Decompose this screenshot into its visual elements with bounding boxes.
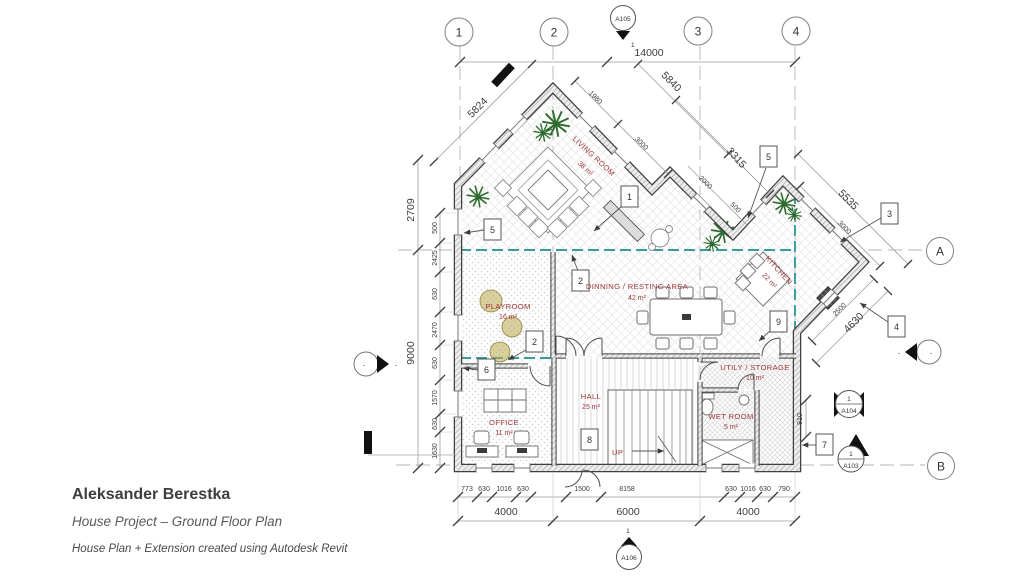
svg-text:-: - bbox=[395, 362, 397, 369]
sheet-author: Aleksander Berestka bbox=[72, 486, 230, 503]
svg-text:A103: A103 bbox=[843, 463, 859, 470]
svg-text:500: 500 bbox=[432, 222, 439, 234]
svg-text:1630: 1630 bbox=[432, 443, 439, 459]
svg-text:6000: 6000 bbox=[616, 506, 640, 518]
tag-6: 6 bbox=[478, 359, 495, 380]
svg-text:1: 1 bbox=[456, 26, 463, 40]
callout-marker-a106: 1 A106 bbox=[617, 528, 642, 570]
svg-text:3: 3 bbox=[695, 25, 702, 39]
office-cabinet bbox=[484, 389, 526, 412]
tag-3: 3 bbox=[881, 203, 898, 224]
dim-diag-left: 5824 bbox=[465, 95, 490, 120]
svg-text:42 m²: 42 m² bbox=[628, 295, 647, 302]
floor-plan-sheet: 14000 5824 5840 1980 3000 3315 2000 500 … bbox=[0, 0, 1024, 576]
section-marker-a104: 1 A104 bbox=[834, 391, 864, 418]
grid-bubble-1: 1 bbox=[445, 18, 473, 46]
svg-text:1980: 1980 bbox=[587, 90, 603, 106]
title-block: Aleksander Berestka House Project – Grou… bbox=[72, 486, 348, 555]
svg-text:630: 630 bbox=[432, 418, 439, 430]
floor-plan-canvas: 14000 5824 5840 1980 3000 3315 2000 500 … bbox=[0, 0, 1024, 576]
grid-bubble-A: A bbox=[927, 238, 954, 265]
svg-text:1016: 1016 bbox=[740, 486, 756, 493]
tag-8: 8 bbox=[581, 429, 598, 450]
svg-text:630: 630 bbox=[517, 486, 529, 493]
svg-text:2: 2 bbox=[578, 276, 583, 286]
room-label-dining: DINNING / RESTING AREA bbox=[586, 282, 689, 291]
elevation-marker-left: - - bbox=[354, 352, 397, 376]
svg-text:3315: 3315 bbox=[724, 145, 749, 171]
svg-text:-: - bbox=[363, 362, 365, 369]
grid-bubble-B: B bbox=[928, 453, 955, 480]
svg-text:4000: 4000 bbox=[494, 506, 518, 518]
svg-text:5: 5 bbox=[490, 225, 495, 235]
tag-4: 4 bbox=[888, 316, 905, 337]
stairs-up-label: UP bbox=[612, 448, 623, 457]
svg-text:3: 3 bbox=[887, 209, 892, 219]
svg-text:A: A bbox=[936, 245, 944, 259]
svg-text:5 m²: 5 m² bbox=[724, 424, 739, 431]
sheet-note: House Plan + Extension created using Aut… bbox=[72, 543, 348, 555]
svg-text:5: 5 bbox=[766, 152, 771, 162]
svg-text:-: - bbox=[898, 350, 900, 357]
room-label-hall: HALL bbox=[581, 392, 601, 401]
grid-bubble-3: 3 bbox=[684, 17, 712, 45]
svg-text:B: B bbox=[937, 460, 945, 474]
svg-text:1570: 1570 bbox=[432, 390, 439, 406]
svg-text:11 m²: 11 m² bbox=[495, 430, 513, 437]
svg-text:9: 9 bbox=[776, 317, 781, 327]
svg-text:630: 630 bbox=[725, 486, 737, 493]
svg-text:1: 1 bbox=[631, 42, 635, 49]
svg-text:3000: 3000 bbox=[633, 136, 649, 152]
svg-text:1: 1 bbox=[626, 528, 630, 535]
svg-text:25 m²: 25 m² bbox=[582, 404, 601, 411]
room-label-utility: UTILY / STORAGE bbox=[720, 363, 789, 372]
sink-icon bbox=[739, 395, 749, 405]
svg-text:6: 6 bbox=[484, 365, 489, 375]
svg-text:630: 630 bbox=[759, 486, 771, 493]
svg-text:630: 630 bbox=[432, 357, 439, 369]
svg-text:4630: 4630 bbox=[841, 310, 866, 335]
svg-text:2500: 2500 bbox=[832, 302, 848, 318]
grid-bubble-4: 4 bbox=[782, 17, 810, 45]
svg-text:500: 500 bbox=[728, 201, 741, 214]
dim-diag-right: 5840 bbox=[659, 69, 684, 94]
tag-1: 1 bbox=[621, 186, 638, 207]
tag-2-playroom: 2 bbox=[526, 331, 543, 352]
svg-text:630: 630 bbox=[432, 288, 439, 300]
svg-text:8158: 8158 bbox=[619, 486, 635, 493]
svg-text:4000: 4000 bbox=[736, 506, 760, 518]
elevation-marker-right: - - bbox=[898, 340, 941, 364]
svg-text:1016: 1016 bbox=[496, 486, 512, 493]
callout-marker-a105: A105 1 bbox=[611, 6, 636, 50]
svg-text:7: 7 bbox=[822, 440, 827, 450]
svg-text:630: 630 bbox=[478, 486, 490, 493]
tag-7: 7 bbox=[816, 434, 833, 455]
svg-text:790: 790 bbox=[778, 486, 790, 493]
svg-text:1500: 1500 bbox=[574, 486, 590, 493]
svg-text:1: 1 bbox=[849, 451, 853, 458]
svg-text:8: 8 bbox=[587, 435, 592, 445]
room-label-playroom: PLAYROOM bbox=[485, 302, 530, 311]
svg-text:910: 910 bbox=[797, 413, 804, 425]
svg-text:773: 773 bbox=[461, 486, 473, 493]
svg-text:2: 2 bbox=[532, 337, 537, 347]
svg-text:9000: 9000 bbox=[405, 341, 417, 365]
svg-text:16 m²: 16 m² bbox=[499, 314, 518, 321]
tag-5-right: 5 bbox=[760, 146, 777, 167]
svg-text:4: 4 bbox=[793, 25, 800, 39]
svg-text:A104: A104 bbox=[841, 408, 857, 415]
shower-icon bbox=[701, 440, 753, 465]
svg-text:2470: 2470 bbox=[432, 322, 439, 338]
svg-text:1: 1 bbox=[847, 396, 851, 403]
svg-text:2425: 2425 bbox=[432, 250, 439, 266]
svg-text:A105: A105 bbox=[615, 16, 631, 23]
svg-text:2: 2 bbox=[551, 26, 558, 40]
room-label-office: OFFICE bbox=[489, 418, 519, 427]
room-label-wetroom: WET ROOM bbox=[708, 412, 753, 421]
svg-text:1: 1 bbox=[627, 192, 632, 202]
tag-9: 9 bbox=[770, 311, 787, 332]
svg-text:5535: 5535 bbox=[836, 187, 861, 212]
svg-text:-: - bbox=[930, 350, 932, 357]
section-marker-a103: 1 A103 bbox=[838, 434, 869, 472]
svg-text:2709: 2709 bbox=[405, 198, 417, 222]
svg-text:4: 4 bbox=[894, 322, 899, 332]
dim-top-total: 14000 bbox=[634, 47, 663, 59]
svg-text:A106: A106 bbox=[621, 555, 637, 562]
tag-5-left: 5 bbox=[484, 219, 501, 240]
grid-bubble-2: 2 bbox=[540, 18, 568, 46]
svg-text:10 m²: 10 m² bbox=[746, 375, 765, 382]
sheet-title: House Project – Ground Floor Plan bbox=[72, 514, 282, 529]
